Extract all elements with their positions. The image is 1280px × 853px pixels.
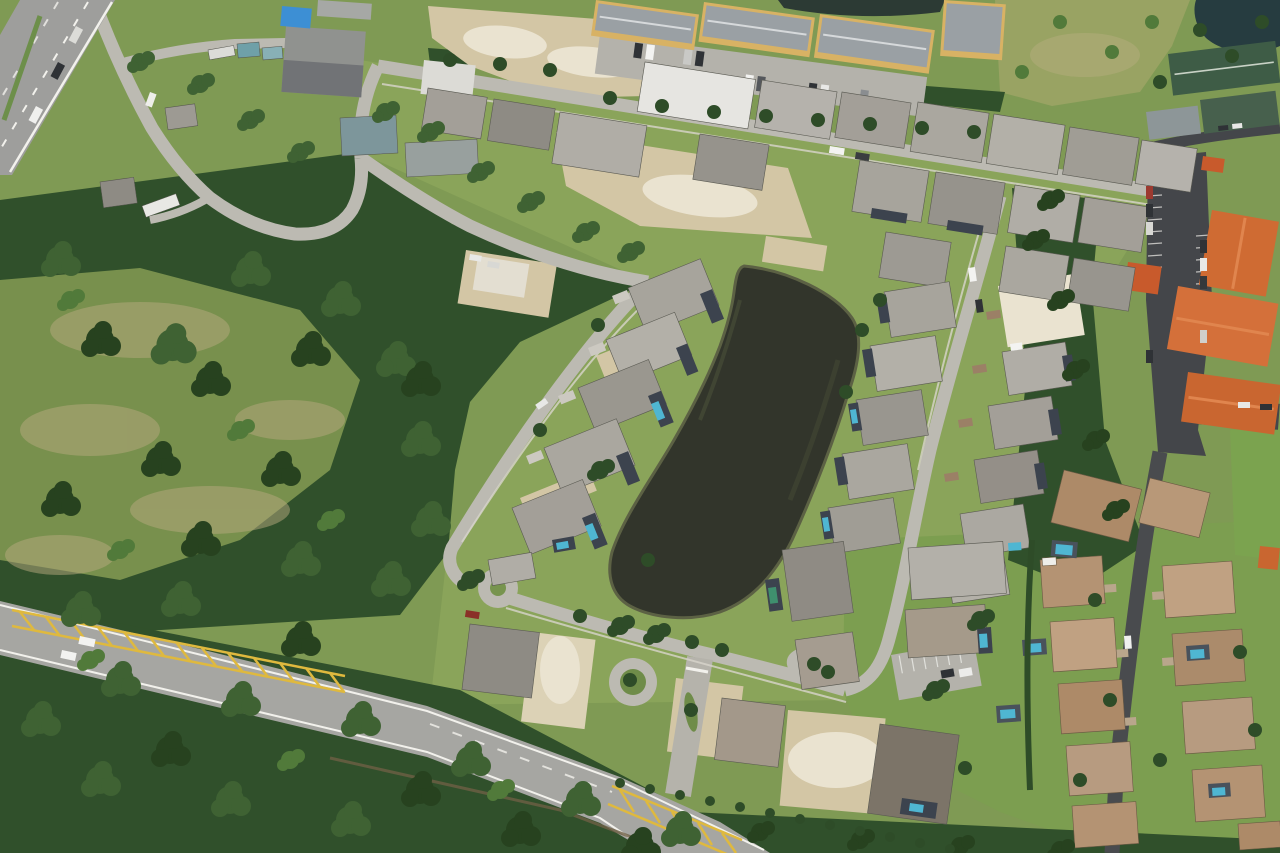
house bbox=[879, 232, 951, 288]
lawn-right-edge bbox=[1230, 425, 1280, 560]
tree bbox=[493, 57, 507, 71]
tree bbox=[623, 673, 637, 687]
tree bbox=[855, 323, 869, 337]
tree bbox=[967, 125, 981, 139]
house bbox=[782, 541, 853, 621]
tree bbox=[543, 63, 557, 77]
car bbox=[1232, 123, 1242, 129]
pool bbox=[1212, 787, 1226, 796]
tree bbox=[707, 105, 721, 119]
tree bbox=[1255, 15, 1269, 29]
pool bbox=[1000, 709, 1016, 719]
tree bbox=[873, 293, 887, 307]
car bbox=[1146, 204, 1153, 217]
house bbox=[1182, 697, 1255, 754]
house bbox=[986, 114, 1065, 175]
house bbox=[237, 42, 260, 58]
car bbox=[1200, 276, 1207, 289]
tree bbox=[533, 423, 547, 437]
tree bbox=[1145, 15, 1159, 29]
car bbox=[1218, 125, 1228, 131]
tree bbox=[811, 113, 825, 127]
tree bbox=[1153, 753, 1167, 767]
house bbox=[1078, 197, 1148, 252]
orange-roof-corner bbox=[1258, 546, 1280, 570]
house bbox=[1072, 802, 1139, 848]
house bbox=[714, 698, 785, 767]
tree bbox=[655, 99, 669, 113]
house bbox=[262, 46, 283, 60]
pool bbox=[1190, 649, 1205, 659]
white-awning bbox=[1042, 557, 1057, 566]
car bbox=[1124, 636, 1132, 649]
house bbox=[405, 139, 479, 177]
tree bbox=[1153, 75, 1167, 89]
car bbox=[1260, 404, 1272, 410]
car bbox=[1146, 222, 1153, 235]
tree bbox=[603, 91, 617, 105]
tree bbox=[685, 635, 699, 649]
tree bbox=[715, 643, 729, 657]
car bbox=[1200, 240, 1207, 253]
house bbox=[908, 541, 1006, 600]
tree bbox=[1088, 593, 1102, 607]
house bbox=[1135, 140, 1197, 192]
house bbox=[100, 177, 137, 207]
car bbox=[1146, 186, 1153, 199]
car bbox=[1238, 402, 1250, 408]
house bbox=[795, 632, 859, 690]
tree bbox=[958, 761, 972, 775]
house bbox=[842, 444, 914, 500]
tree bbox=[591, 318, 605, 332]
tree bbox=[1193, 23, 1207, 37]
tree bbox=[839, 385, 853, 399]
tree bbox=[641, 553, 655, 567]
aerial-photo bbox=[0, 0, 1280, 853]
house bbox=[1162, 561, 1235, 618]
tree bbox=[863, 117, 877, 131]
house bbox=[1067, 258, 1135, 311]
car bbox=[1200, 258, 1207, 271]
house bbox=[1050, 618, 1117, 672]
tree bbox=[1103, 693, 1117, 707]
house bbox=[884, 282, 956, 338]
house bbox=[1058, 680, 1125, 734]
tree bbox=[573, 609, 587, 623]
pool bbox=[979, 633, 988, 648]
tree bbox=[915, 121, 929, 135]
blue-tarp-roof bbox=[280, 6, 312, 29]
tree bbox=[1225, 49, 1239, 63]
car bbox=[1200, 330, 1207, 343]
warehouse bbox=[281, 26, 365, 97]
tree bbox=[1105, 45, 1119, 59]
house bbox=[856, 390, 928, 446]
house bbox=[1066, 742, 1133, 796]
pool bbox=[1008, 542, 1022, 551]
field-dry-patch bbox=[1030, 33, 1140, 77]
house bbox=[165, 104, 198, 130]
tree bbox=[1053, 15, 1067, 29]
car bbox=[1146, 350, 1153, 363]
tree bbox=[1073, 773, 1087, 787]
house bbox=[870, 336, 942, 392]
tree bbox=[821, 665, 835, 679]
house bbox=[340, 115, 398, 156]
pool bbox=[1055, 544, 1073, 555]
tree bbox=[684, 703, 698, 717]
aerial-photo-frame bbox=[0, 0, 1280, 853]
tree bbox=[1015, 65, 1029, 79]
tree bbox=[807, 657, 821, 671]
house bbox=[462, 624, 540, 698]
apartment-building bbox=[940, 0, 1006, 60]
tree bbox=[759, 109, 773, 123]
house bbox=[1238, 821, 1280, 850]
tree bbox=[1233, 645, 1247, 659]
tree bbox=[1248, 723, 1262, 737]
tree bbox=[443, 53, 457, 67]
